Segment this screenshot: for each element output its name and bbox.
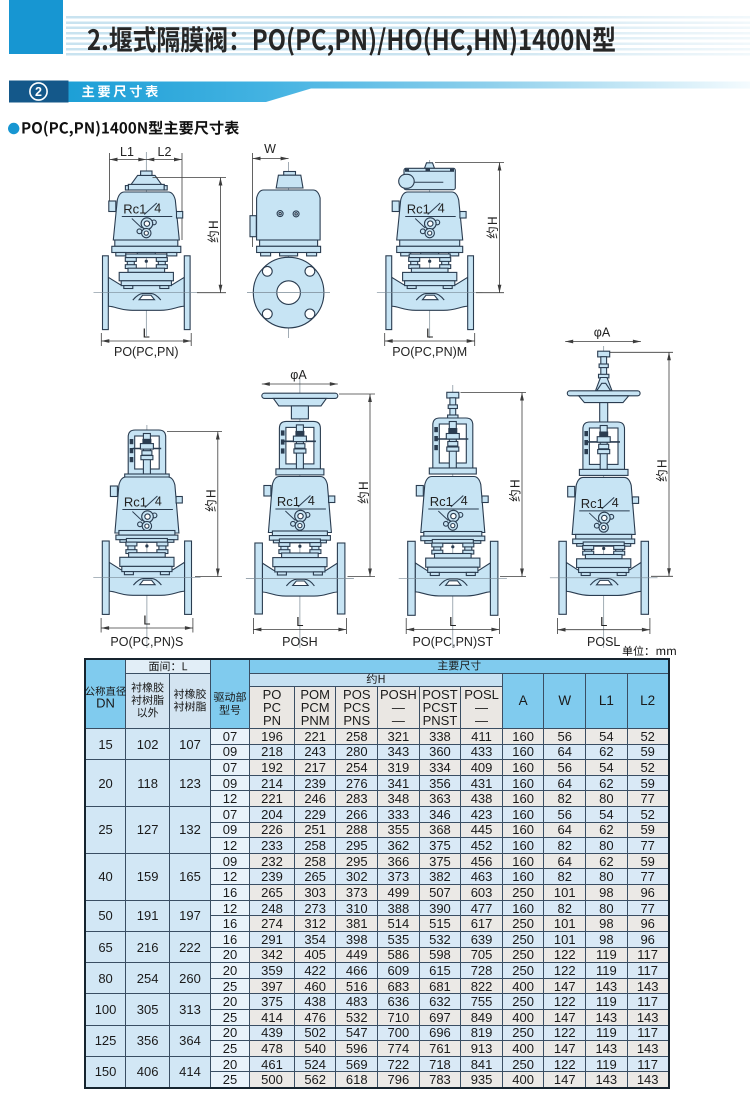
svg-text:Rc1: Rc1 (124, 495, 147, 510)
svg-text:4: 4 (438, 202, 445, 216)
svg-text:L: L (426, 326, 433, 341)
svg-text:PO(PC,PN): PO(PC,PN) (114, 345, 179, 359)
svg-text:Rc1: Rc1 (277, 494, 300, 509)
svg-text:PO(PC,PN)ST: PO(PC,PN)ST (413, 635, 494, 649)
svg-text:4: 4 (154, 202, 161, 216)
svg-text:Rc1: Rc1 (430, 494, 453, 509)
svg-text:Rc1: Rc1 (407, 202, 430, 217)
svg-text:2: 2 (35, 85, 42, 99)
svg-text:4: 4 (308, 494, 315, 508)
svg-text:4: 4 (612, 496, 619, 510)
svg-text:PO(PC,PN)S: PO(PC,PN)S (110, 635, 183, 649)
svg-text:φA: φA (594, 326, 611, 340)
svg-text:L: L (449, 614, 456, 629)
svg-text:4: 4 (155, 495, 162, 509)
svg-text:W: W (264, 142, 276, 156)
svg-text:Rc1: Rc1 (123, 202, 146, 217)
svg-text:L1: L1 (120, 145, 134, 159)
svg-text:POSH: POSH (282, 635, 317, 649)
svg-text:L: L (143, 326, 150, 341)
svg-text:φA: φA (290, 368, 307, 382)
svg-text:L2: L2 (158, 145, 172, 159)
svg-text:4: 4 (461, 494, 468, 508)
svg-text:L: L (143, 613, 150, 628)
svg-text:PO(PC,PN)M: PO(PC,PN)M (392, 345, 467, 359)
svg-text:Rc1: Rc1 (581, 496, 604, 511)
svg-text:L: L (600, 614, 607, 629)
svg-text:L: L (296, 614, 303, 629)
